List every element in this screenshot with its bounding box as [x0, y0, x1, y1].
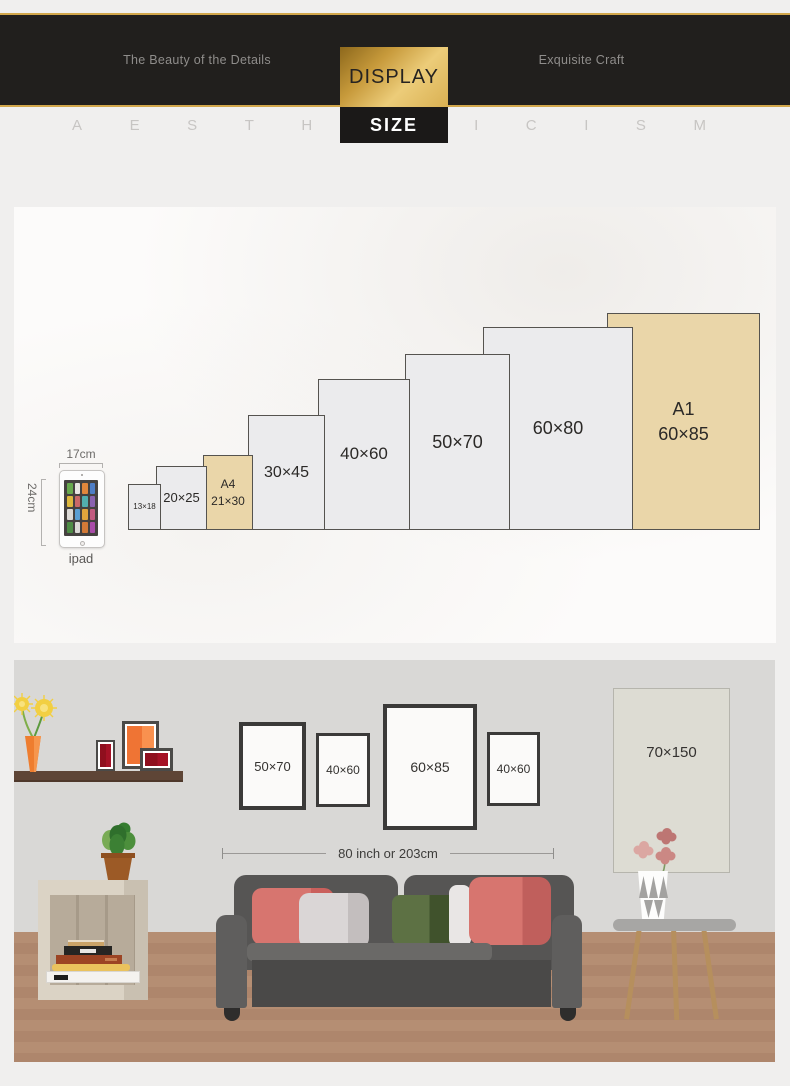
size-rect-label: 40×60 — [340, 443, 388, 466]
app-icon — [67, 509, 73, 520]
shelf-frame-wide-red — [140, 748, 173, 771]
size-rect-40×60: 40×60 — [318, 379, 410, 530]
flower-vase-illustration — [14, 688, 66, 778]
size-rect-13×18: 13×18 — [128, 484, 161, 530]
table-leg-right — [701, 927, 719, 1020]
size-chart-panel: 17cm 24cm ipad 13×1820×25A421×3030×4540×… — [14, 207, 776, 643]
side-cabinet — [38, 880, 148, 1000]
size-rect-30×45: 30×45 — [248, 415, 325, 530]
app-icon — [82, 496, 88, 507]
display-title-box: DISPLAY — [340, 47, 448, 107]
app-icon — [90, 522, 96, 533]
sofa-foot-left — [224, 1006, 240, 1021]
watermark-letter: C — [526, 117, 537, 135]
ipad-width-bracket — [59, 463, 103, 468]
sofa-armrest-right — [552, 915, 582, 1008]
table-top — [613, 919, 736, 931]
room-scene: 50×7040×6060×8540×6070×150 80 inch or 20… — [14, 660, 775, 1062]
watermark-letter: S — [187, 117, 197, 135]
app-icon — [75, 496, 81, 507]
white-book — [46, 971, 140, 983]
pillow-green — [392, 895, 457, 945]
size-title-box: SIZE — [340, 107, 448, 143]
cactus-pot-illustration — [97, 818, 141, 881]
wall-poster-40×60: 40×60 — [316, 733, 370, 807]
product-infographic-page: The Beauty of the Details Exquisite Craf… — [0, 0, 790, 1086]
wall-poster-label: 40×60 — [497, 762, 531, 776]
size-rect-50×70: 50×70 — [405, 354, 510, 530]
app-icon — [75, 522, 81, 533]
pillow-light-gray — [299, 893, 369, 948]
ipad-home-button — [80, 541, 85, 546]
size-title: SIZE — [370, 115, 418, 136]
display-title: DISPLAY — [349, 66, 439, 89]
wall-poster-label: 70×150 — [646, 744, 696, 761]
size-rect-label: 30×45 — [264, 462, 309, 484]
wall-poster-50×70: 50×70 — [239, 722, 306, 810]
app-icon — [82, 522, 88, 533]
size-rect-20×25: 20×25 — [156, 466, 207, 530]
app-icon — [82, 483, 88, 494]
size-rect-label: 60×85 — [658, 422, 709, 446]
ipad-camera-dot — [81, 474, 83, 476]
pot-rim — [101, 853, 135, 858]
sofa-seat-cushion — [247, 943, 492, 961]
app-icon — [67, 522, 73, 533]
ipad-screen — [64, 480, 98, 536]
wall-poster-label: 50×70 — [254, 759, 291, 774]
table-leg-left — [624, 927, 642, 1020]
watermark-letter: S — [636, 117, 646, 135]
app-icon — [90, 509, 96, 520]
tan-book — [68, 940, 104, 946]
watermark-letter: M — [693, 117, 706, 135]
app-icon — [90, 496, 96, 507]
watermark-letter: I — [474, 117, 478, 135]
size-rect-label: A1 — [672, 397, 694, 421]
app-icon — [75, 509, 81, 520]
app-icon — [82, 509, 88, 520]
sofa-foot-right — [560, 1006, 576, 1021]
vase-triangle-pattern — [636, 871, 670, 919]
sofa-armrest-left — [216, 915, 247, 1008]
right-tagline: Exquisite Craft — [448, 13, 715, 107]
wall-poster-label: 60×85 — [410, 759, 449, 775]
left-tagline: The Beauty of the Details — [62, 13, 332, 107]
wall-poster-label: 40×60 — [326, 763, 360, 777]
shelf-frame-small-red — [96, 740, 115, 771]
size-rect-label: 20×25 — [163, 489, 200, 507]
size-rect-A4-21×30: A421×30 — [203, 455, 253, 530]
app-icon — [90, 483, 96, 494]
size-rect-label: 13×18 — [133, 502, 155, 513]
sofa-width-measure: 80 inch or 203cm — [222, 848, 554, 859]
ipad-height-bracket — [41, 479, 46, 546]
blossoms — [634, 828, 677, 865]
app-icon — [67, 496, 73, 507]
sofa-illustration — [202, 873, 582, 1023]
watermark-letter: T — [245, 117, 254, 135]
size-rect-label: 21×30 — [211, 493, 245, 509]
red-book — [56, 955, 122, 964]
app-icon — [75, 483, 81, 494]
ipad-caption: ipad — [53, 551, 109, 566]
cabinet-opening — [50, 895, 135, 985]
ipad-height-label: 24cm — [25, 483, 39, 512]
size-rect-label: 60×80 — [533, 416, 584, 440]
wall-poster-40×60: 40×60 — [487, 732, 540, 806]
yellow-book — [52, 964, 130, 971]
pillow-salmon-right — [469, 877, 551, 945]
dandelion-flowers — [14, 693, 57, 721]
measure-line-left — [223, 853, 326, 854]
table-leg-center — [671, 927, 679, 1020]
watermark-letter: I — [584, 117, 588, 135]
ipad-width-label: 17cm — [59, 447, 103, 461]
watermark-letter: H — [301, 117, 312, 135]
watermark-letter: A — [72, 117, 82, 135]
watermark-letter: E — [130, 117, 140, 135]
dark-box — [64, 946, 112, 955]
ipad-illustration — [59, 470, 105, 548]
pillow-white — [449, 885, 471, 947]
app-icon — [67, 483, 73, 494]
measure-text: 80 inch or 203cm — [326, 847, 450, 860]
side-table — [613, 919, 736, 1024]
measure-line-right — [450, 853, 553, 854]
sofa-base — [252, 960, 551, 1007]
size-rect-label: A4 — [221, 476, 236, 492]
wall-poster-60×85: 60×85 — [383, 704, 477, 830]
size-rect-label: 50×70 — [432, 430, 483, 454]
